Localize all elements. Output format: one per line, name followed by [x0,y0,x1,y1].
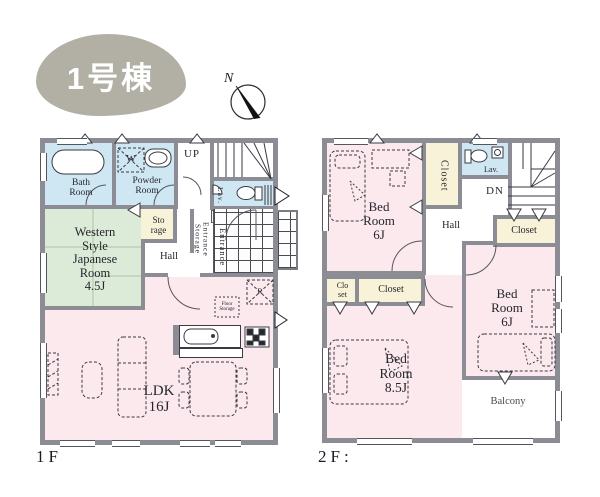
room-western-japanese [45,209,145,310]
room-lavatory-2f [462,143,508,179]
window [555,391,562,421]
room-closet-top [426,143,462,209]
room-storage [141,209,177,243]
room-closet-small [327,275,359,306]
room-bedroom-6j-left [327,143,426,275]
room-stairs-up [210,143,273,181]
floorplan-canvas: 1号棟 N [0,0,600,497]
window [322,348,329,393]
building-badge: 1号棟 [36,34,186,116]
room-bath [45,143,116,209]
window [473,438,533,445]
window [40,253,47,293]
window [555,276,562,302]
room-powder [116,143,178,209]
window [60,440,95,447]
wall [190,209,194,253]
floor1-plan: Bath Room Powder Room UP Lav. Sto rage W… [40,138,278,445]
compass-north-label: N [223,71,234,86]
door-opening [168,273,200,277]
window [273,368,280,413]
label-entrance-storage: Entrance Storage [193,210,210,268]
wall [141,273,273,277]
window [334,138,368,145]
room-bedroom-6j-right [462,241,555,376]
label-stairs-dn: DN [483,185,507,198]
label-hall-2f: Hall [429,218,473,233]
room-closet-right [493,215,555,247]
window [555,309,562,333]
room-stairs-dn [508,143,555,219]
room-closet-mid [359,275,425,306]
window [57,138,87,145]
building-badge-label: 1号棟 [67,53,155,98]
entrance-tile-floor [213,209,273,273]
room-balcony [462,376,555,438]
window [357,438,412,445]
window [215,440,241,447]
floor2-plan: Bed Room 6J Closet Lav. DN Hall Closet C… [322,138,560,443]
floor2-label: 2F: [318,447,353,467]
floor1-label: 1F [36,447,62,467]
label-hall-1f: Hall [148,249,190,264]
label-stairs-up: UP [178,148,206,162]
kitchen-counter [179,325,241,348]
window [473,138,497,145]
window [112,440,140,447]
window [40,153,47,181]
kitchen-island [179,348,243,358]
roof-vent-markers [370,134,484,143]
window [180,440,210,447]
window [322,195,329,231]
room-lavatory-1f [210,181,273,210]
compass-north-icon: N [218,64,274,128]
window [40,343,47,398]
porch-tile [278,210,298,270]
